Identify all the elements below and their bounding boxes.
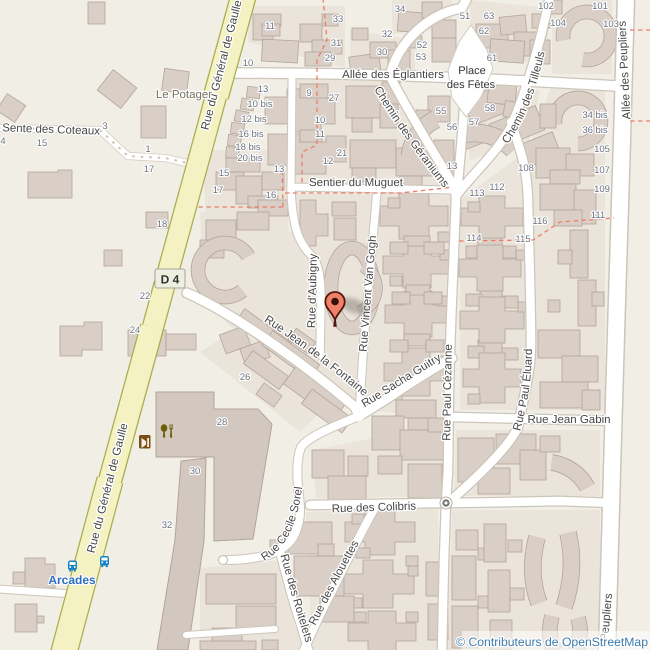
svg-text:18 bis: 18 bis xyxy=(235,142,261,153)
svg-text:111: 111 xyxy=(591,210,605,221)
svg-text:36 bis: 36 bis xyxy=(582,125,608,136)
svg-text:11: 11 xyxy=(265,21,275,32)
svg-text:12 bis: 12 bis xyxy=(241,114,267,125)
svg-text:32: 32 xyxy=(382,29,393,40)
svg-text:61: 61 xyxy=(487,53,498,64)
svg-text:15: 15 xyxy=(37,138,48,149)
svg-text:Rue d'Aubigny: Rue d'Aubigny xyxy=(306,253,320,328)
svg-text:116: 116 xyxy=(532,216,547,227)
svg-text:9: 9 xyxy=(306,88,311,99)
svg-text:112: 112 xyxy=(489,182,504,193)
svg-text:115: 115 xyxy=(515,234,530,245)
svg-text:104: 104 xyxy=(550,18,566,29)
svg-text:22: 22 xyxy=(140,291,151,302)
svg-text:13: 13 xyxy=(274,164,285,175)
svg-text:34: 34 xyxy=(395,4,406,15)
svg-text:Le Potager: Le Potager xyxy=(156,89,212,101)
svg-text:18: 18 xyxy=(157,219,168,230)
svg-text:15: 15 xyxy=(219,168,230,179)
svg-text:Rue Jean Gabin: Rue Jean Gabin xyxy=(527,414,610,426)
svg-text:32: 32 xyxy=(162,520,173,531)
svg-text:Arcades: Arcades xyxy=(48,573,96,587)
svg-text:13: 13 xyxy=(258,84,269,95)
svg-text:Place: Place xyxy=(458,65,486,77)
svg-text:62: 62 xyxy=(479,26,490,37)
svg-text:24: 24 xyxy=(130,325,141,336)
svg-text:21: 21 xyxy=(337,148,348,159)
svg-text:103: 103 xyxy=(603,19,619,30)
svg-text:33: 33 xyxy=(333,14,344,25)
svg-text:10: 10 xyxy=(315,115,326,126)
svg-text:3: 3 xyxy=(102,121,107,132)
svg-text:20 bis: 20 bis xyxy=(237,153,263,164)
svg-text:Sentier du Muguet: Sentier du Muguet xyxy=(309,177,404,189)
svg-text:Allée des Églantiers: Allée des Églantiers xyxy=(342,68,444,81)
svg-text:17: 17 xyxy=(213,185,224,196)
svg-text:30: 30 xyxy=(190,466,201,477)
svg-text:56: 56 xyxy=(447,122,458,133)
svg-text:17: 17 xyxy=(144,164,155,175)
svg-text:12: 12 xyxy=(323,156,334,167)
svg-text:10: 10 xyxy=(243,58,254,69)
svg-text:53: 53 xyxy=(416,52,427,63)
svg-text:D 4: D 4 xyxy=(161,273,180,287)
svg-text:55: 55 xyxy=(436,106,447,117)
svg-text:1: 1 xyxy=(145,144,150,155)
svg-text:102: 102 xyxy=(538,1,554,12)
svg-text:113: 113 xyxy=(469,188,484,199)
svg-text:109: 109 xyxy=(594,184,610,195)
svg-text:13: 13 xyxy=(447,161,458,172)
svg-text:52: 52 xyxy=(417,40,428,51)
svg-text:31: 31 xyxy=(331,38,342,49)
svg-text:107: 107 xyxy=(594,165,610,176)
svg-text:51: 51 xyxy=(460,11,471,22)
svg-text:des Fêtes: des Fêtes xyxy=(447,79,496,91)
svg-text:11: 11 xyxy=(315,129,325,140)
svg-text:101: 101 xyxy=(592,1,608,12)
svg-text:29: 29 xyxy=(325,53,336,64)
svg-text:114: 114 xyxy=(466,233,481,244)
svg-text:4: 4 xyxy=(0,136,5,147)
svg-text:26: 26 xyxy=(240,372,251,383)
svg-text:10 bis: 10 bis xyxy=(247,99,273,110)
svg-text:34 bis: 34 bis xyxy=(582,110,608,121)
svg-text:28: 28 xyxy=(217,417,228,428)
svg-text:Rue Paul Cézanne: Rue Paul Cézanne xyxy=(441,344,455,441)
svg-text:108: 108 xyxy=(518,163,534,174)
svg-text:63: 63 xyxy=(484,11,495,22)
svg-text:16 bis: 16 bis xyxy=(238,129,264,140)
svg-text:© Contributeurs de OpenStreetM: © Contributeurs de OpenStreetMap xyxy=(456,635,648,649)
svg-text:58: 58 xyxy=(485,103,496,114)
svg-text:27: 27 xyxy=(329,93,340,104)
svg-text:57: 57 xyxy=(469,117,480,128)
svg-text:16: 16 xyxy=(266,190,277,201)
svg-text:105: 105 xyxy=(594,144,610,155)
svg-text:30: 30 xyxy=(377,47,388,58)
